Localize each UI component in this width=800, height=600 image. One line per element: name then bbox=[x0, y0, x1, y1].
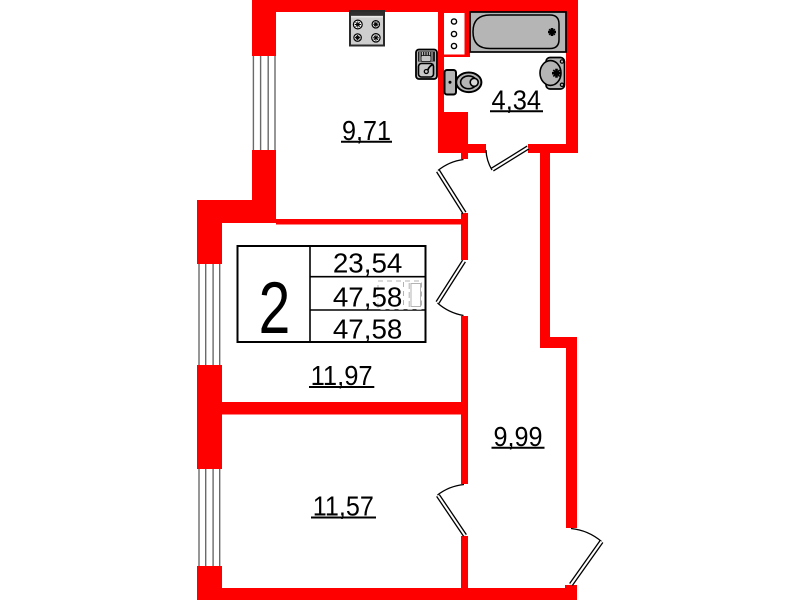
svg-text:2: 2 bbox=[259, 267, 291, 348]
svg-text:23,54: 23,54 bbox=[333, 248, 403, 279]
svg-text:47,58: 47,58 bbox=[333, 282, 403, 313]
svg-text:47,58: 47,58 bbox=[333, 314, 403, 345]
